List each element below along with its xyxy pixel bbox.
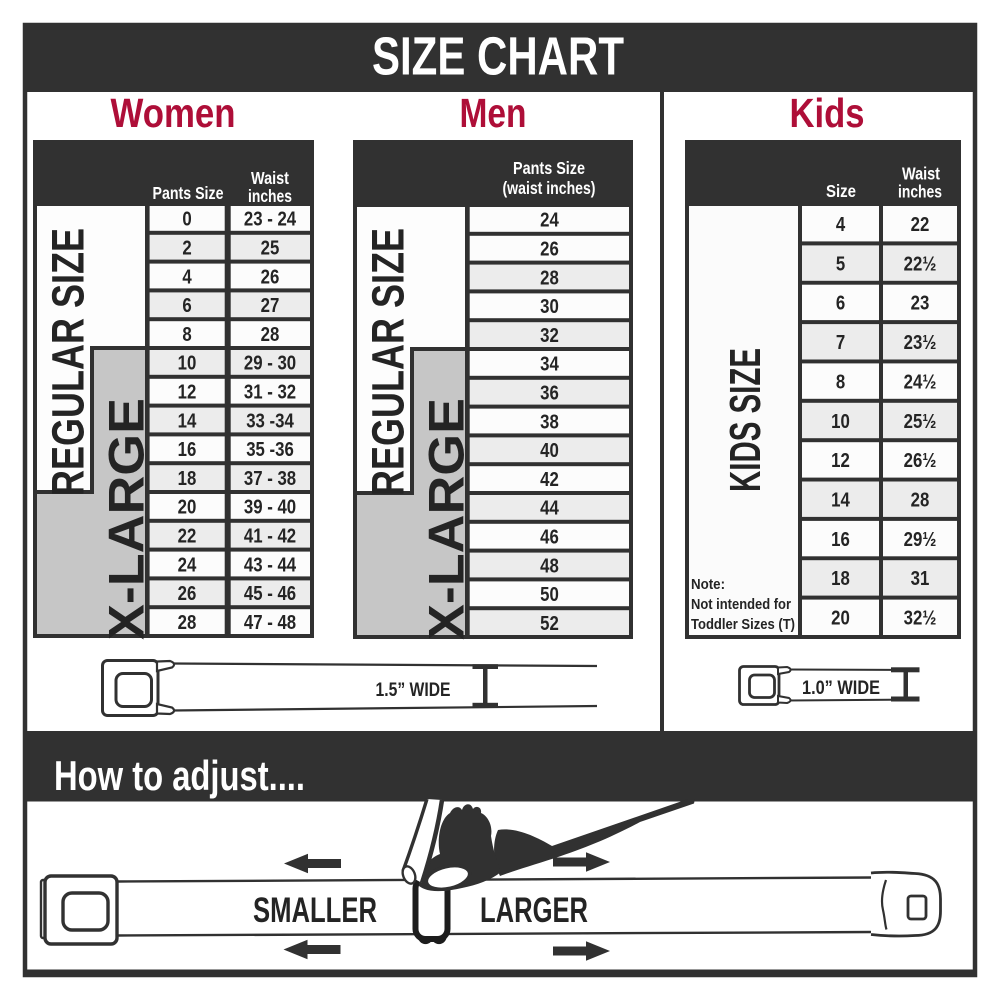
svg-text:LARGER: LARGER [480, 891, 588, 930]
svg-text:Waist: Waist [251, 168, 289, 188]
svg-text:20: 20 [831, 606, 850, 629]
svg-text:23 - 24: 23 - 24 [244, 207, 297, 230]
svg-text:26½: 26½ [904, 449, 937, 472]
svg-text:22: 22 [911, 213, 930, 236]
svg-text:28: 28 [261, 322, 280, 345]
svg-text:Women: Women [111, 90, 236, 136]
svg-text:46: 46 [540, 525, 559, 548]
svg-text:47 - 48: 47 - 48 [244, 610, 296, 633]
svg-text:4: 4 [182, 265, 192, 288]
svg-text:31 - 32: 31 - 32 [244, 380, 296, 403]
svg-text:50: 50 [540, 583, 559, 606]
svg-text:28: 28 [178, 610, 197, 633]
svg-text:How to adjust....: How to adjust.... [54, 752, 305, 799]
svg-text:31: 31 [911, 567, 930, 590]
svg-text:4: 4 [836, 213, 846, 236]
svg-text:20: 20 [178, 495, 197, 518]
svg-text:12: 12 [178, 380, 197, 403]
svg-text:40: 40 [540, 439, 559, 462]
svg-text:inches: inches [898, 182, 942, 202]
svg-text:45 - 46: 45 - 46 [244, 582, 296, 605]
svg-text:30: 30 [540, 295, 559, 318]
svg-text:REGULAR SIZE: REGULAR SIZE [43, 228, 94, 496]
svg-text:18: 18 [831, 567, 850, 590]
svg-text:10: 10 [178, 351, 197, 374]
svg-text:REGULAR SIZE: REGULAR SIZE [363, 228, 414, 496]
svg-text:6: 6 [836, 291, 845, 314]
svg-text:14: 14 [178, 409, 197, 432]
svg-text:Toddler Sizes (T): Toddler Sizes (T) [691, 616, 795, 633]
svg-text:Note:: Note: [691, 576, 725, 593]
svg-text:41 - 42: 41 - 42 [244, 524, 296, 547]
svg-text:24: 24 [540, 208, 559, 231]
svg-text:52: 52 [540, 611, 559, 634]
svg-text:10: 10 [831, 409, 850, 432]
svg-text:SIZE CHART: SIZE CHART [372, 27, 624, 87]
svg-text:29 - 30: 29 - 30 [244, 351, 296, 374]
svg-text:1.0” WIDE: 1.0” WIDE [802, 678, 880, 699]
svg-text:26: 26 [178, 582, 197, 605]
svg-text:43 - 44: 43 - 44 [244, 553, 297, 576]
svg-text:KIDS SIZE: KIDS SIZE [721, 348, 770, 492]
svg-text:12: 12 [831, 449, 850, 472]
svg-text:Men: Men [460, 90, 527, 136]
svg-text:8: 8 [836, 370, 845, 393]
svg-text:24: 24 [178, 553, 197, 576]
svg-text:23: 23 [911, 291, 930, 314]
svg-text:1.5” WIDE: 1.5” WIDE [376, 680, 451, 701]
svg-text:39 - 40: 39 - 40 [244, 495, 296, 518]
svg-text:28: 28 [540, 266, 559, 289]
svg-text:(waist inches): (waist inches) [503, 178, 596, 198]
svg-text:8: 8 [182, 322, 191, 345]
svg-text:25: 25 [261, 236, 280, 259]
svg-text:5: 5 [836, 252, 845, 275]
svg-text:32½: 32½ [904, 606, 937, 629]
svg-text:25½: 25½ [904, 409, 937, 432]
svg-text:32: 32 [540, 323, 559, 346]
svg-text:22: 22 [178, 524, 197, 547]
svg-text:7: 7 [836, 331, 845, 354]
svg-text:27: 27 [261, 294, 280, 317]
svg-text:inches: inches [248, 186, 292, 206]
svg-text:22½: 22½ [904, 252, 937, 275]
svg-text:36: 36 [540, 381, 559, 404]
svg-text:6: 6 [182, 294, 191, 317]
svg-text:16: 16 [831, 527, 850, 550]
svg-text:Not intended for: Not intended for [691, 596, 791, 613]
svg-text:X-LARGE: X-LARGE [419, 398, 475, 640]
svg-text:SMALLER: SMALLER [253, 891, 377, 930]
svg-text:26: 26 [261, 265, 280, 288]
svg-text:26: 26 [540, 237, 559, 260]
svg-text:18: 18 [178, 466, 197, 489]
svg-text:28: 28 [911, 488, 930, 511]
svg-text:38: 38 [540, 410, 559, 433]
svg-text:29½: 29½ [904, 527, 937, 550]
svg-text:24½: 24½ [904, 370, 937, 393]
svg-text:48: 48 [540, 554, 559, 577]
svg-text:33 -34: 33 -34 [246, 409, 294, 432]
svg-text:35 -36: 35 -36 [246, 438, 294, 461]
svg-text:14: 14 [831, 488, 850, 511]
svg-text:2: 2 [182, 236, 191, 259]
svg-text:Pants Size: Pants Size [513, 158, 585, 178]
svg-text:Size: Size [826, 181, 856, 201]
svg-text:44: 44 [540, 496, 559, 519]
svg-text:Pants Size: Pants Size [153, 183, 224, 203]
svg-text:37 - 38: 37 - 38 [244, 466, 296, 489]
svg-text:Waist: Waist [902, 164, 940, 184]
svg-text:42: 42 [540, 467, 559, 490]
svg-text:16: 16 [178, 438, 197, 461]
svg-text:Kids: Kids [790, 90, 865, 136]
svg-text:X-LARGE: X-LARGE [99, 398, 155, 640]
svg-text:23½: 23½ [904, 331, 937, 354]
svg-text:0: 0 [182, 207, 191, 230]
svg-text:34: 34 [540, 352, 559, 375]
